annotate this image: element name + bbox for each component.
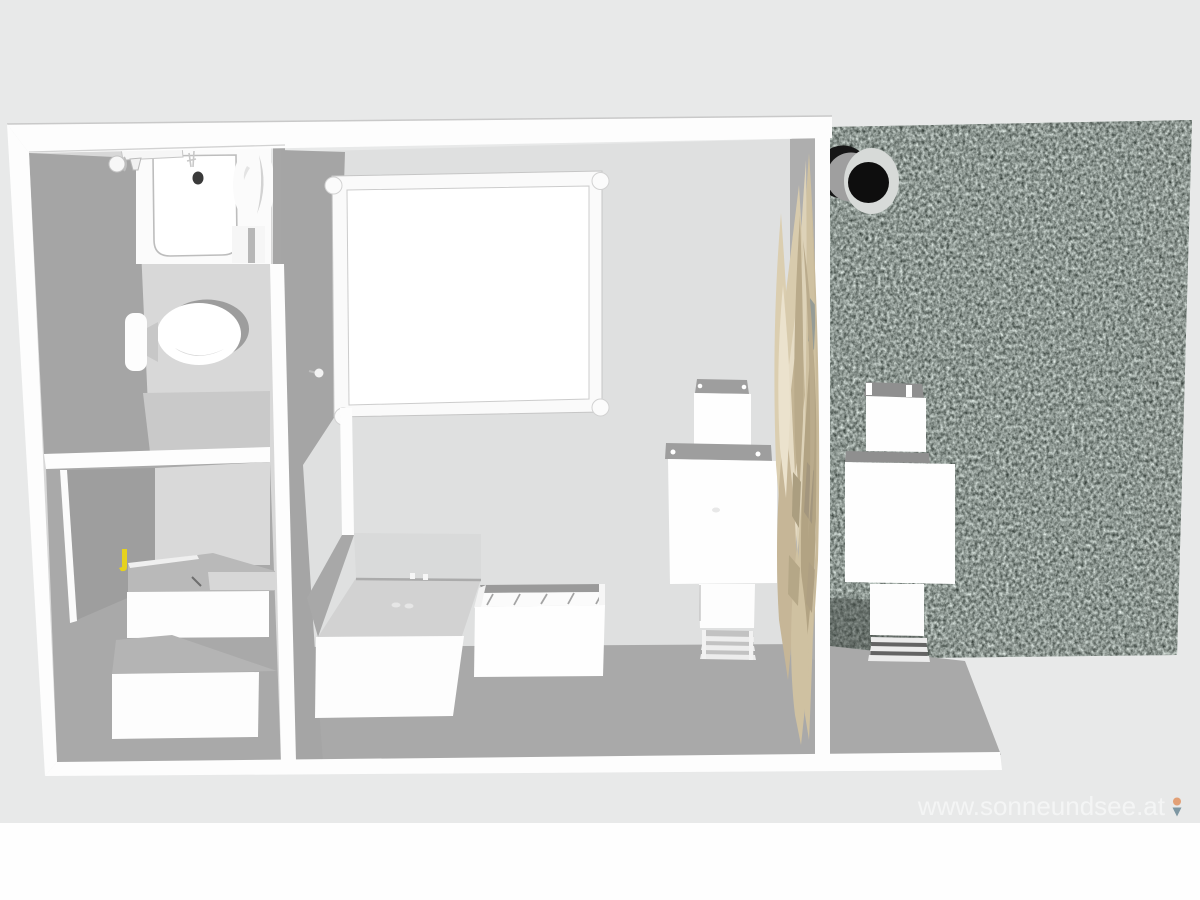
svg-text:www.sonneundsee.at: www.sonneundsee.at xyxy=(917,791,1166,821)
